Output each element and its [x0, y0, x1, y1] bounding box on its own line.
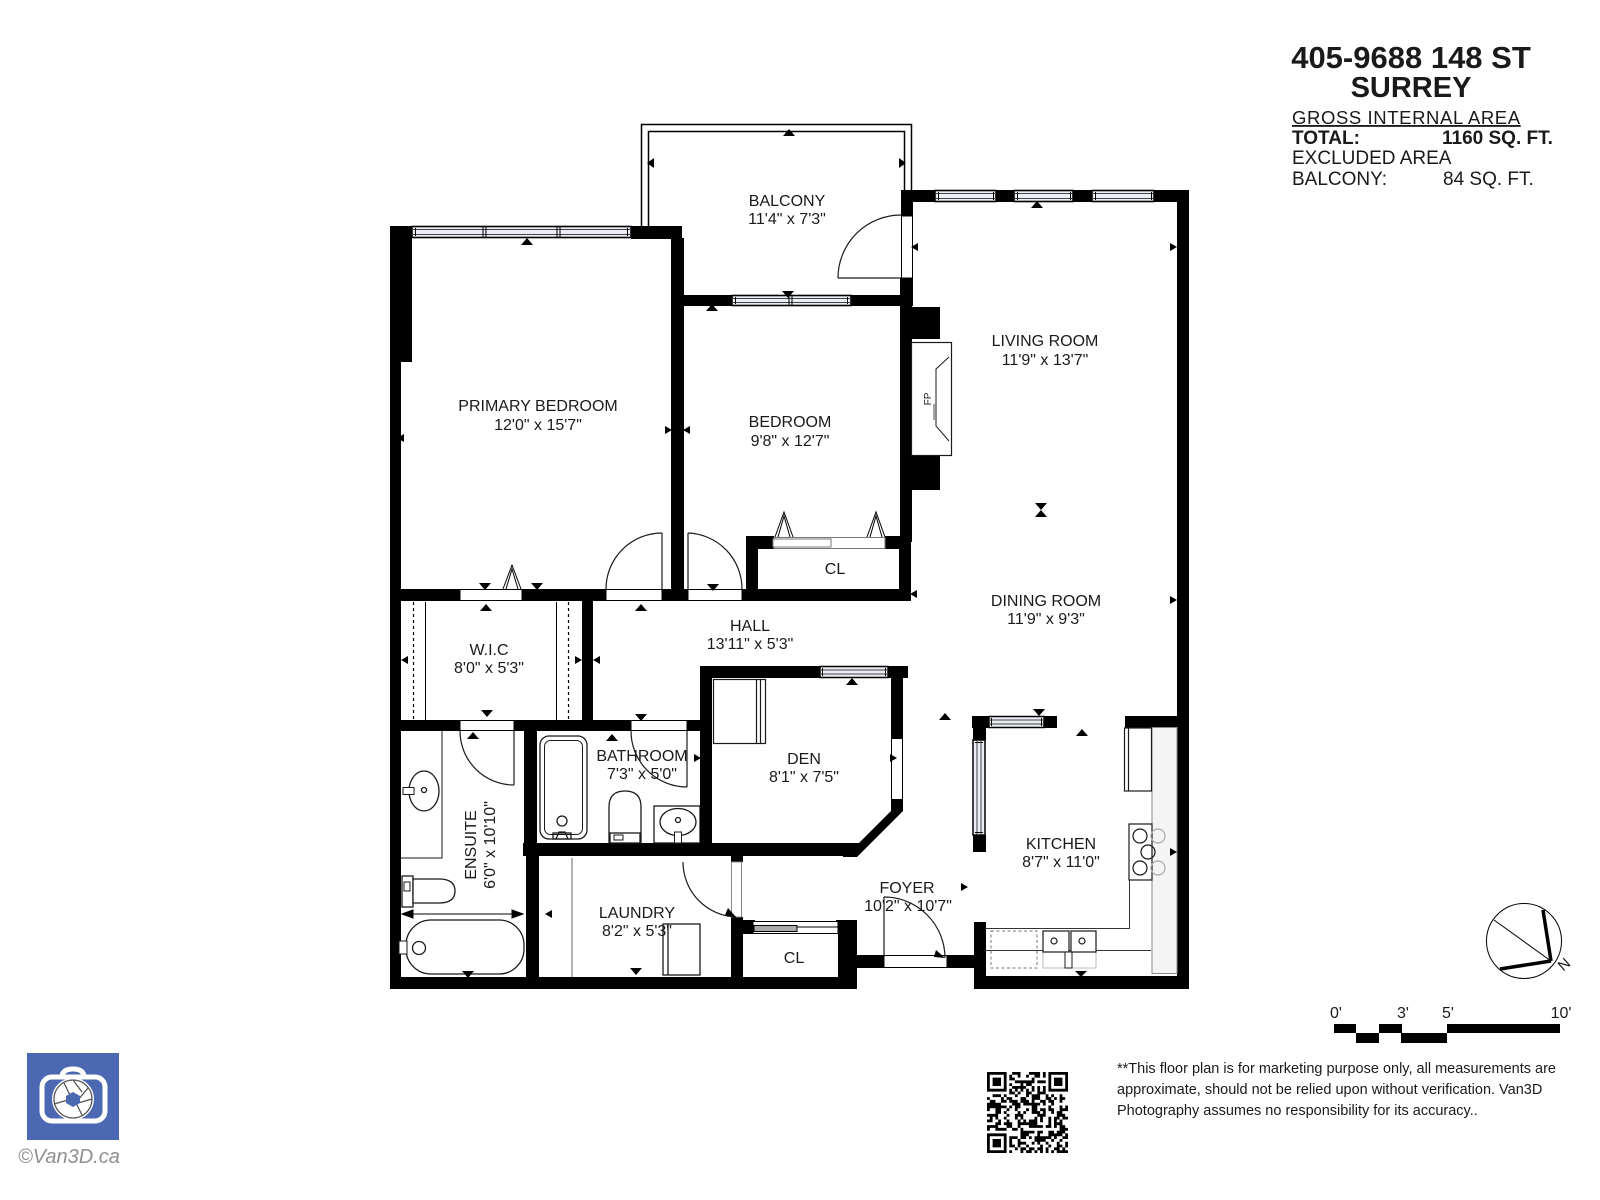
svg-text:LAUNDRY: LAUNDRY [599, 905, 676, 922]
svg-text:LIVING ROOM: LIVING ROOM [992, 333, 1099, 350]
svg-text:HALL: HALL [730, 618, 770, 635]
svg-text:GROSS INTERNAL AREA: GROSS INTERNAL AREA [1292, 107, 1521, 128]
svg-text:DINING ROOM: DINING ROOM [991, 593, 1101, 610]
svg-text:8'0" x 5'3": 8'0" x 5'3" [454, 660, 524, 677]
svg-text:7'3" x 5'0": 7'3" x 5'0" [607, 766, 677, 783]
svg-text:SURREY: SURREY [1351, 72, 1472, 104]
svg-text:10': 10' [1551, 1005, 1572, 1022]
svg-text:CL: CL [825, 561, 846, 578]
svg-text:84 SQ. FT.: 84 SQ. FT. [1443, 169, 1534, 190]
svg-text:405-9688 148 ST: 405-9688 148 ST [1291, 40, 1531, 75]
svg-text:13'11" x 5'3": 13'11" x 5'3" [707, 636, 794, 653]
svg-text:12'0" x 15'7": 12'0" x 15'7" [494, 417, 582, 434]
svg-text:BALCONY:: BALCONY: [1292, 169, 1387, 190]
svg-text:TOTAL:: TOTAL: [1292, 128, 1360, 149]
svg-text:FP: FP [923, 392, 934, 405]
svg-text:9'8" x 12'7": 9'8" x 12'7" [751, 433, 830, 450]
svg-text:1160 SQ. FT.: 1160 SQ. FT. [1442, 128, 1553, 149]
svg-text:ENSUITE: ENSUITE [463, 810, 480, 879]
svg-text:8'7" x 11'0": 8'7" x 11'0" [1022, 854, 1100, 871]
svg-text:©Van3D.ca: ©Van3D.ca [18, 1146, 120, 1168]
svg-text:10'2" x 10'7": 10'2" x 10'7" [864, 898, 952, 915]
svg-text:11'9" x 13'7": 11'9" x 13'7" [1002, 352, 1089, 369]
svg-text:PRIMARY BEDROOM: PRIMARY BEDROOM [458, 398, 617, 415]
svg-text:8'1" x 7'5": 8'1" x 7'5" [769, 769, 839, 786]
svg-text:8'2" x 5'3": 8'2" x 5'3" [602, 923, 672, 940]
svg-text:DEN: DEN [787, 751, 821, 768]
svg-text:11'4" x 7'3": 11'4" x 7'3" [748, 211, 826, 228]
svg-text:W.I.C: W.I.C [469, 642, 508, 659]
svg-text:EXCLUDED AREA: EXCLUDED AREA [1292, 148, 1452, 169]
svg-text:3': 3' [1397, 1005, 1409, 1022]
svg-text:FOYER: FOYER [879, 880, 934, 897]
svg-text:11'9" x 9'3": 11'9" x 9'3" [1007, 611, 1085, 628]
svg-text:0': 0' [1330, 1005, 1342, 1022]
svg-text:BALCONY: BALCONY [749, 193, 826, 210]
svg-text:**This floor plan is for marke: **This floor plan is for marketing purpo… [1117, 1061, 1556, 1077]
svg-text:BATHROOM: BATHROOM [596, 748, 687, 765]
svg-text:KITCHEN: KITCHEN [1026, 836, 1096, 853]
svg-text:Photography assumes no respons: Photography assumes no responsibility fo… [1117, 1103, 1478, 1119]
svg-text:5': 5' [1442, 1005, 1454, 1022]
svg-text:CL: CL [784, 950, 805, 967]
svg-text:BEDROOM: BEDROOM [749, 414, 832, 431]
svg-text:approximate, should not be rel: approximate, should not be relied upon w… [1117, 1082, 1542, 1098]
svg-text:6'0" x 10'10": 6'0" x 10'10" [482, 801, 499, 889]
